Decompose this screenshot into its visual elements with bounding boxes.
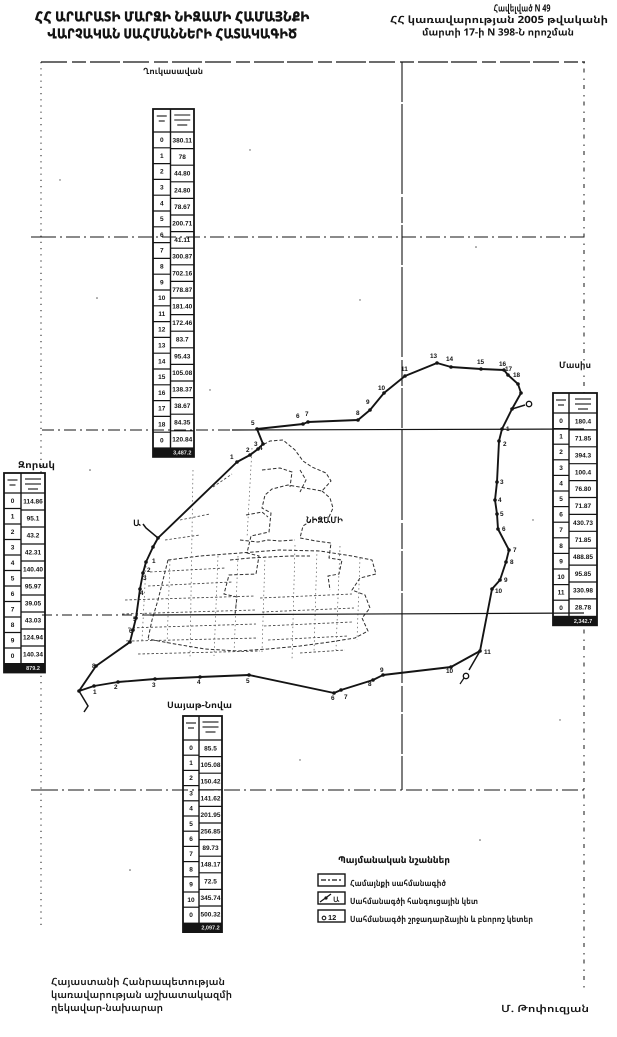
svg-text:500.32: 500.32 — [201, 912, 221, 919]
svg-text:2: 2 — [246, 447, 250, 454]
svg-text:10: 10 — [446, 668, 454, 675]
svg-text:13: 13 — [430, 353, 438, 360]
svg-text:89.73: 89.73 — [202, 845, 219, 852]
svg-text:7: 7 — [189, 851, 193, 858]
svg-text:14: 14 — [158, 358, 166, 365]
svg-text:330.98: 330.98 — [573, 588, 593, 595]
svg-text:138.37: 138.37 — [172, 387, 192, 394]
svg-text:105.08: 105.08 — [201, 762, 221, 769]
svg-text:38.67: 38.67 — [174, 403, 191, 410]
svg-text:9: 9 — [559, 558, 563, 565]
svg-text:85.5: 85.5 — [204, 746, 217, 753]
svg-text:0: 0 — [11, 498, 15, 505]
svg-text:3: 3 — [152, 682, 156, 689]
svg-text:24.80: 24.80 — [174, 187, 191, 194]
svg-text:10: 10 — [557, 574, 565, 581]
svg-text:2: 2 — [114, 684, 118, 691]
svg-text:5: 5 — [133, 616, 137, 623]
svg-text:778.87: 778.87 — [172, 287, 192, 294]
svg-text:10: 10 — [158, 295, 166, 302]
svg-text:4: 4 — [11, 560, 15, 567]
svg-text:345.74: 345.74 — [201, 895, 221, 902]
svg-text:7: 7 — [559, 527, 563, 534]
svg-text:200.71: 200.71 — [172, 221, 192, 228]
svg-text:140.34: 140.34 — [23, 652, 43, 659]
svg-text:5: 5 — [189, 821, 193, 828]
svg-text:71.85: 71.85 — [575, 436, 592, 443]
svg-text:150.42: 150.42 — [201, 779, 221, 786]
svg-text:4: 4 — [160, 200, 164, 207]
svg-text:11: 11 — [558, 590, 565, 597]
svg-text:1: 1 — [230, 454, 234, 461]
svg-text:9: 9 — [366, 399, 370, 406]
svg-text:8: 8 — [189, 866, 193, 873]
svg-text:72.5: 72.5 — [204, 878, 217, 885]
svg-text:15: 15 — [158, 374, 166, 381]
svg-text:8: 8 — [92, 663, 96, 670]
svg-text:2: 2 — [147, 567, 151, 574]
svg-text:83.7: 83.7 — [176, 337, 189, 344]
svg-text:1: 1 — [152, 558, 156, 565]
svg-text:256.85: 256.85 — [201, 829, 221, 836]
svg-text:394.3: 394.3 — [575, 452, 592, 459]
svg-text:5: 5 — [11, 576, 15, 583]
svg-text:201.95: 201.95 — [201, 812, 221, 819]
svg-text:8: 8 — [11, 622, 15, 629]
svg-text:84.35: 84.35 — [174, 420, 191, 427]
svg-text:8: 8 — [510, 559, 514, 566]
svg-text:6: 6 — [11, 591, 15, 598]
svg-text:10: 10 — [495, 588, 503, 595]
svg-text:3: 3 — [160, 185, 164, 192]
svg-text:13: 13 — [158, 343, 166, 350]
svg-text:5: 5 — [251, 420, 255, 427]
svg-text:0: 0 — [11, 653, 15, 660]
svg-text:9: 9 — [504, 577, 508, 584]
svg-text:488.85: 488.85 — [573, 554, 593, 561]
svg-text:2: 2 — [189, 775, 193, 782]
svg-text:7: 7 — [11, 607, 15, 614]
svg-text:105.08: 105.08 — [172, 370, 192, 377]
svg-text:9: 9 — [189, 882, 193, 889]
svg-text:124.94: 124.94 — [23, 635, 43, 642]
svg-text:5: 5 — [559, 496, 563, 503]
svg-text:10: 10 — [378, 385, 386, 392]
svg-text:8: 8 — [160, 264, 164, 271]
svg-text:3,487.2: 3,487.2 — [173, 450, 191, 456]
svg-text:2: 2 — [11, 529, 15, 536]
svg-text:7: 7 — [305, 411, 309, 418]
svg-text:141.62: 141.62 — [201, 795, 221, 802]
svg-text:95.1: 95.1 — [27, 516, 40, 523]
svg-text:3: 3 — [559, 465, 563, 472]
svg-text:6: 6 — [502, 526, 506, 533]
svg-text:7: 7 — [344, 694, 348, 701]
svg-text:17: 17 — [158, 406, 166, 413]
svg-text:95.97: 95.97 — [25, 584, 42, 591]
svg-text:1: 1 — [559, 434, 563, 441]
svg-text:8: 8 — [368, 681, 372, 688]
svg-text:172.46: 172.46 — [172, 320, 192, 327]
svg-text:114.86: 114.86 — [23, 499, 43, 506]
svg-text:71.85: 71.85 — [575, 537, 592, 544]
svg-text:12: 12 — [158, 327, 166, 334]
svg-text:6: 6 — [129, 628, 133, 635]
svg-text:0: 0 — [160, 137, 164, 144]
svg-text:4: 4 — [259, 445, 263, 452]
svg-text:300.87: 300.87 — [172, 254, 192, 261]
svg-text:18: 18 — [158, 422, 166, 429]
svg-text:78.67: 78.67 — [174, 204, 191, 211]
svg-text:181.40: 181.40 — [172, 304, 192, 311]
svg-text:0: 0 — [160, 437, 164, 444]
svg-text:11: 11 — [158, 311, 165, 318]
svg-text:3: 3 — [189, 790, 193, 797]
svg-text:4: 4 — [197, 679, 201, 686]
svg-text:42.31: 42.31 — [25, 550, 42, 557]
svg-text:10: 10 — [187, 897, 195, 904]
svg-text:2,342.7: 2,342.7 — [574, 619, 592, 625]
svg-text:3: 3 — [254, 441, 258, 448]
svg-text:1: 1 — [93, 689, 97, 696]
svg-text:6: 6 — [296, 413, 300, 420]
svg-text:11: 11 — [401, 366, 408, 373]
svg-text:4: 4 — [189, 806, 193, 813]
svg-text:3: 3 — [143, 575, 147, 582]
svg-text:1: 1 — [506, 426, 510, 433]
svg-text:5: 5 — [160, 216, 164, 223]
svg-text:100.4: 100.4 — [575, 469, 592, 476]
svg-text:0: 0 — [559, 605, 563, 612]
svg-text:430.73: 430.73 — [573, 520, 593, 527]
svg-text:43.03: 43.03 — [25, 618, 42, 625]
svg-text:2: 2 — [503, 441, 507, 448]
svg-text:9: 9 — [380, 667, 384, 674]
svg-text:702.16: 702.16 — [172, 270, 192, 277]
svg-text:6: 6 — [331, 695, 335, 702]
svg-text:0: 0 — [189, 745, 193, 752]
svg-text:2,097.2: 2,097.2 — [201, 926, 219, 932]
svg-text:16: 16 — [158, 390, 166, 397]
svg-text:4: 4 — [140, 590, 144, 597]
svg-text:28.78: 28.78 — [575, 605, 592, 612]
svg-text:1: 1 — [11, 514, 15, 521]
svg-text:5: 5 — [500, 511, 504, 518]
svg-text:4: 4 — [559, 480, 563, 487]
svg-text:6: 6 — [189, 836, 193, 843]
svg-text:41.11: 41.11 — [174, 237, 190, 244]
svg-text:0: 0 — [559, 418, 563, 425]
svg-text:76.80: 76.80 — [575, 486, 592, 493]
svg-text:5: 5 — [246, 678, 250, 685]
svg-text:18: 18 — [513, 372, 521, 379]
svg-text:71.87: 71.87 — [575, 503, 592, 510]
svg-text:43.2: 43.2 — [27, 533, 40, 540]
svg-text:95.43: 95.43 — [174, 353, 191, 360]
svg-text:3: 3 — [11, 545, 15, 552]
svg-text:17: 17 — [505, 366, 513, 373]
svg-text:7: 7 — [513, 547, 517, 554]
svg-text:44.80: 44.80 — [174, 171, 191, 178]
svg-text:15: 15 — [477, 359, 485, 366]
svg-text:6: 6 — [160, 232, 164, 239]
svg-text:7: 7 — [160, 248, 164, 255]
svg-text:0: 0 — [189, 912, 193, 919]
svg-text:180.4: 180.4 — [575, 419, 592, 426]
svg-text:9: 9 — [160, 279, 164, 286]
svg-text:95.85: 95.85 — [575, 571, 592, 578]
svg-text:12: 12 — [328, 913, 336, 922]
svg-text:380.11: 380.11 — [172, 138, 192, 145]
svg-text:6: 6 — [559, 512, 563, 519]
svg-text:8: 8 — [559, 543, 563, 550]
svg-text:2: 2 — [160, 169, 164, 176]
svg-text:9: 9 — [11, 638, 15, 645]
svg-text:120.84: 120.84 — [172, 436, 192, 443]
svg-text:78: 78 — [179, 154, 187, 161]
svg-text:39.05: 39.05 — [25, 601, 42, 608]
svg-text:11: 11 — [484, 649, 491, 656]
svg-text:7: 7 — [126, 640, 130, 647]
svg-text:879.2: 879.2 — [26, 666, 40, 672]
svg-text:140.40: 140.40 — [23, 567, 43, 574]
svg-text:8: 8 — [356, 410, 360, 417]
svg-text:1: 1 — [189, 760, 193, 767]
svg-text:2: 2 — [559, 449, 563, 456]
svg-text:148.17: 148.17 — [201, 862, 221, 869]
svg-text:3: 3 — [500, 479, 504, 486]
svg-text:4: 4 — [498, 497, 502, 504]
svg-text:1: 1 — [160, 153, 164, 160]
svg-text:14: 14 — [446, 356, 454, 363]
